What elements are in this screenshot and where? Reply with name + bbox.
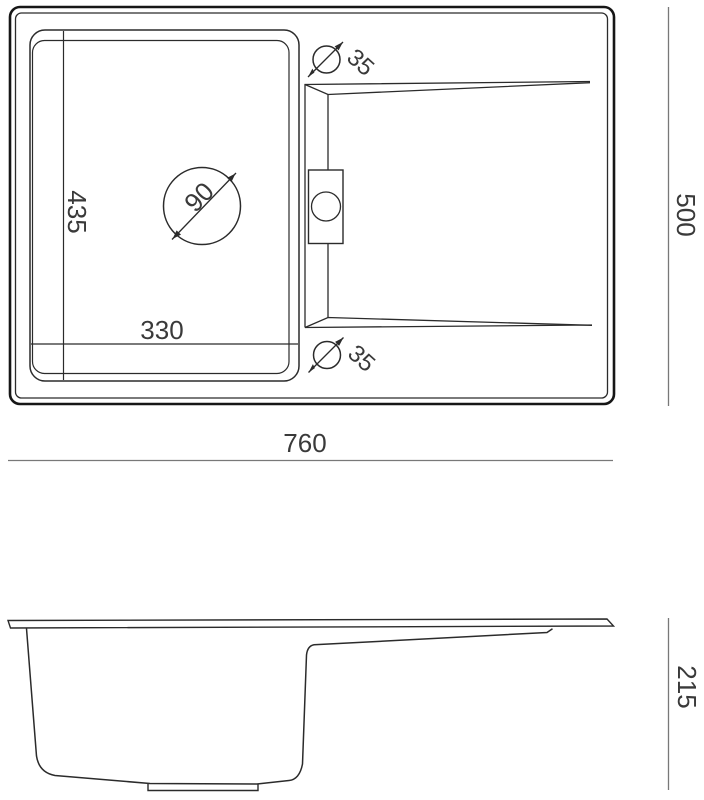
top-view: 90 35 35	[10, 7, 614, 404]
side-view	[8, 619, 614, 791]
drain: 90	[164, 168, 241, 245]
diameter-symbol-icon	[313, 46, 340, 73]
overall-width-label: 760	[283, 428, 326, 458]
drainboard-left-and-top-edge	[305, 82, 590, 328]
side-height-label: 215	[672, 665, 702, 708]
rim-profile	[8, 619, 614, 628]
tap-plate-hole	[312, 192, 341, 221]
arrowhead-icon	[308, 69, 314, 77]
arrowhead-icon	[309, 364, 315, 372]
overall-depth-label: 500	[671, 193, 701, 236]
drain-diameter-label: 90	[178, 176, 220, 218]
body-profile	[27, 629, 553, 785]
bowl-width-label: 330	[140, 315, 183, 345]
bowl-depth-label: 435	[62, 190, 92, 233]
drainboard	[305, 82, 592, 328]
drawing-svg: 90 35 35	[0, 0, 704, 800]
tap-hole-top-label: 35	[341, 44, 379, 82]
tap-hole-plate	[309, 170, 344, 244]
tap-hole-callout-top: 35	[308, 42, 379, 82]
tap-hole-bottom-label: 35	[342, 340, 380, 378]
diameter-symbol-icon	[314, 342, 341, 369]
tap-hole-callout-bottom: 35	[309, 338, 381, 378]
drainboard-bottom-edge	[305, 325, 592, 328]
tap-plate-rect	[309, 170, 344, 244]
sink-technical-drawing: 90 35 35	[0, 0, 704, 800]
